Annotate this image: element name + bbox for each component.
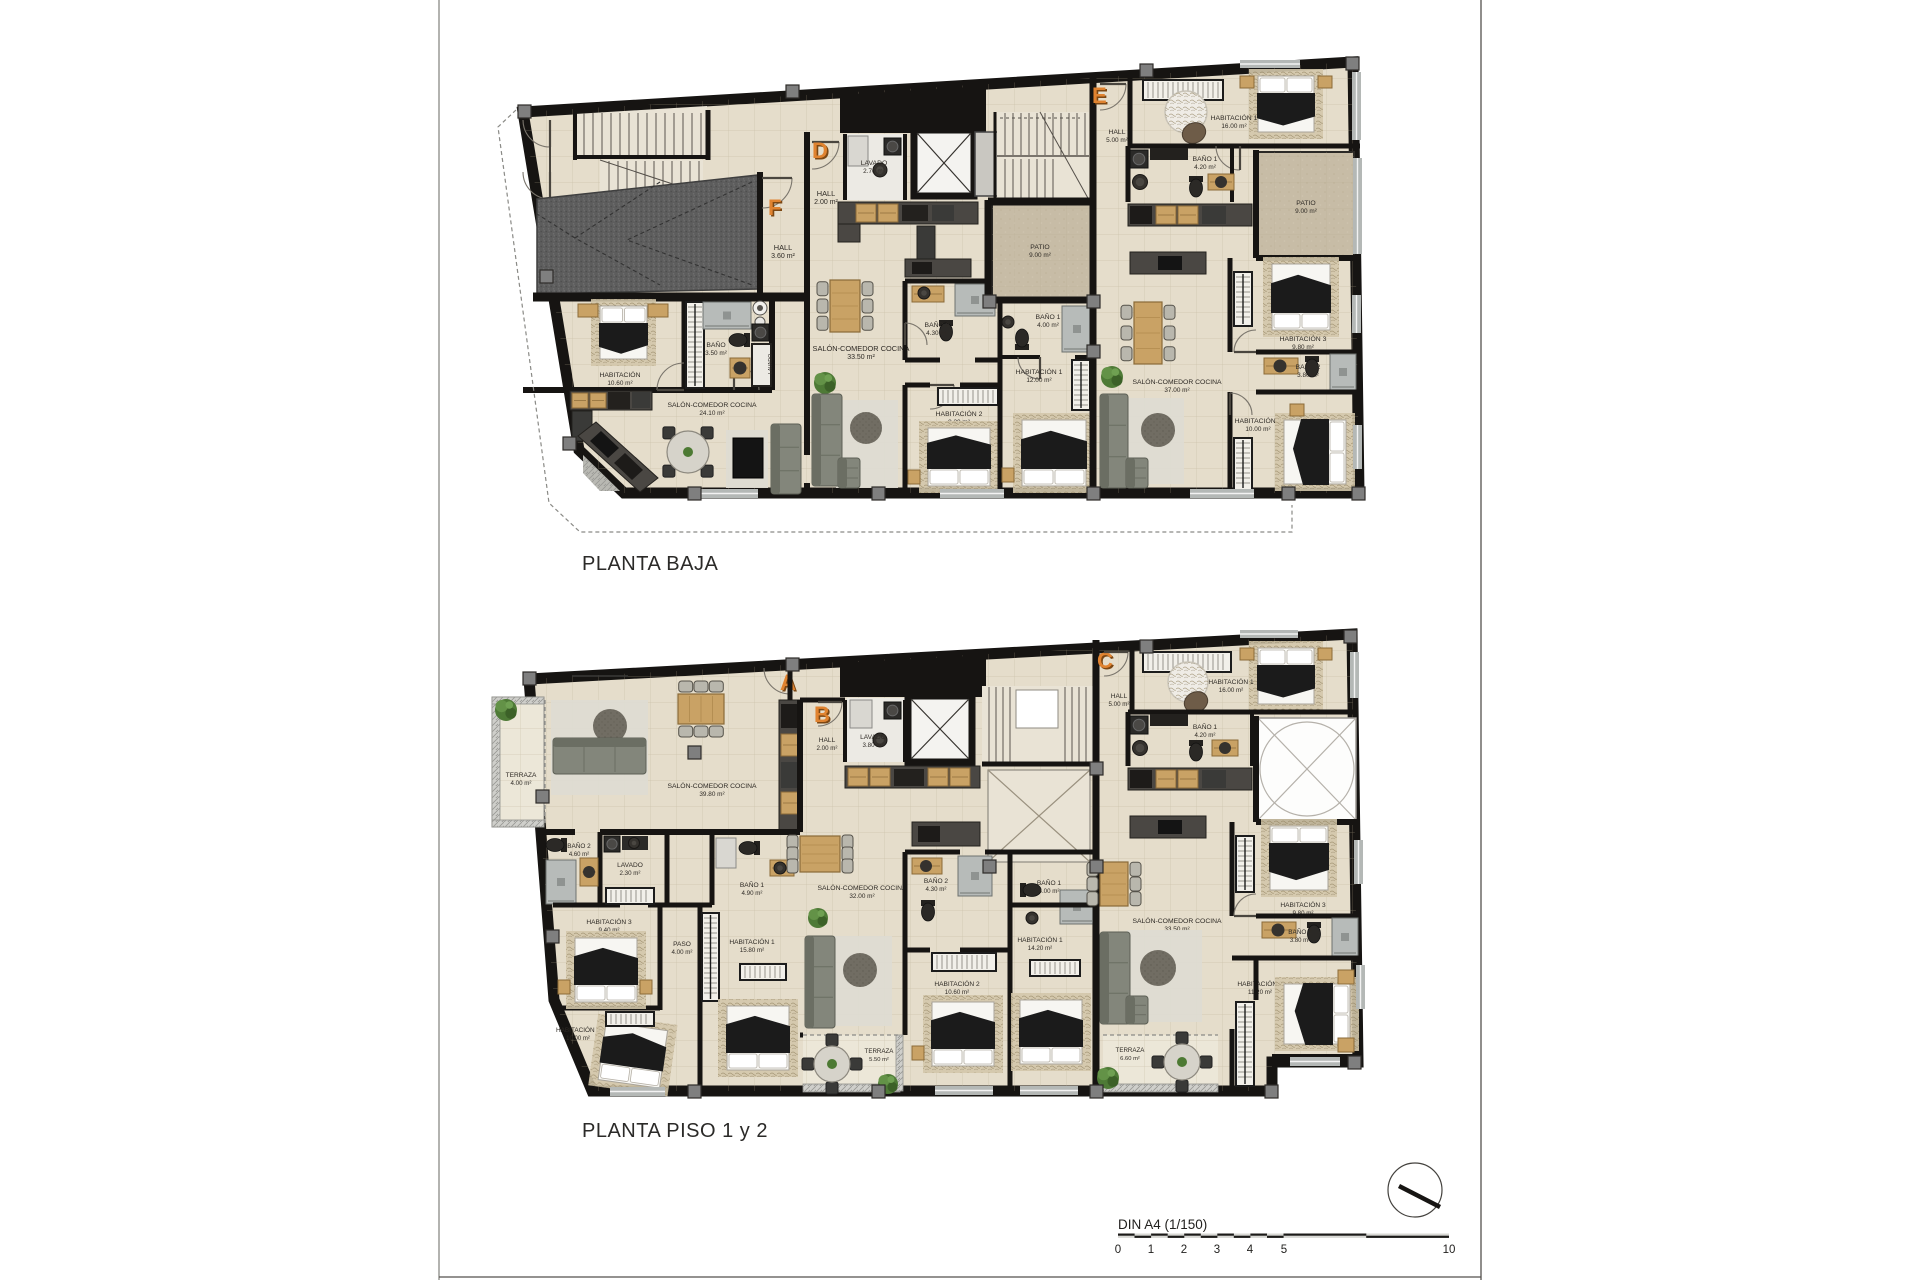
svg-text:SALÓN-COMEDOR COCINA: SALÓN-COMEDOR COCINA bbox=[817, 883, 907, 892]
svg-text:3.80 m²: 3.80 m² bbox=[1297, 372, 1319, 379]
svg-text:HABITACIÓN 2: HABITACIÓN 2 bbox=[1235, 416, 1282, 425]
svg-text:16.00 m²: 16.00 m² bbox=[1219, 687, 1243, 694]
svg-text:4.00 m²: 4.00 m² bbox=[672, 949, 693, 956]
svg-text:HALL: HALL bbox=[819, 737, 836, 744]
svg-text:5.00 m²: 5.00 m² bbox=[1109, 701, 1130, 708]
svg-text:BAÑO 1: BAÑO 1 bbox=[1193, 722, 1218, 731]
svg-text:4.90 m²: 4.90 m² bbox=[742, 890, 763, 897]
svg-text:4.00 m²: 4.00 m² bbox=[511, 780, 532, 787]
svg-text:33.50 m²: 33.50 m² bbox=[847, 354, 875, 361]
svg-text:HABITACIÓN 1: HABITACIÓN 1 bbox=[1211, 113, 1258, 122]
svg-text:9.00 m²: 9.00 m² bbox=[1029, 252, 1051, 259]
svg-text:HALL: HALL bbox=[1108, 129, 1125, 136]
svg-text:PLANTA BAJA: PLANTA BAJA bbox=[582, 553, 718, 575]
svg-text:BAÑO 2: BAÑO 2 bbox=[1288, 927, 1312, 936]
svg-text:HABITACIÓN 2: HABITACIÓN 2 bbox=[556, 1025, 600, 1034]
svg-text:BAÑO: BAÑO bbox=[706, 340, 725, 349]
svg-text:2: 2 bbox=[1181, 1244, 1187, 1256]
svg-text:SALÓN-COMEDOR COCINA: SALÓN-COMEDOR COCINA bbox=[1132, 377, 1222, 386]
svg-text:11.20 m²: 11.20 m² bbox=[1248, 989, 1272, 996]
svg-text:HABITACIÓN 3: HABITACIÓN 3 bbox=[586, 917, 632, 926]
svg-text:5.00 m²: 5.00 m² bbox=[1106, 137, 1128, 144]
svg-text:TERRAZA: TERRAZA bbox=[1116, 1047, 1146, 1054]
svg-text:BAÑO 1: BAÑO 1 bbox=[740, 880, 765, 889]
svg-text:37.00 m²: 37.00 m² bbox=[1164, 387, 1189, 394]
svg-text:32.00 m²: 32.00 m² bbox=[849, 893, 874, 900]
svg-text:HABITACIÓN 3: HABITACIÓN 3 bbox=[1280, 334, 1327, 343]
svg-text:BAÑO 1: BAÑO 1 bbox=[1037, 878, 1062, 887]
svg-text:2.00 m²: 2.00 m² bbox=[817, 745, 838, 752]
svg-text:12.00 m²: 12.00 m² bbox=[1026, 377, 1051, 384]
svg-text:LAVADO: LAVADO bbox=[860, 734, 886, 741]
svg-text:HABITACIÓN 1: HABITACIÓN 1 bbox=[1017, 935, 1063, 944]
svg-text:5.50 m²: 5.50 m² bbox=[869, 1057, 889, 1063]
svg-text:B: B bbox=[814, 702, 830, 727]
svg-text:BAÑO 2: BAÑO 2 bbox=[567, 841, 591, 850]
svg-text:SALÓN-COMEDOR COCINA: SALÓN-COMEDOR COCINA bbox=[1132, 916, 1222, 925]
svg-text:HABITACIÓN 2: HABITACIÓN 2 bbox=[934, 979, 980, 988]
svg-text:24.10 m²: 24.10 m² bbox=[699, 410, 724, 417]
svg-text:HABITACIÓN 1: HABITACIÓN 1 bbox=[729, 937, 775, 946]
svg-text:BAÑO 2: BAÑO 2 bbox=[1296, 362, 1321, 371]
svg-text:HABITACIÓN 1: HABITACIÓN 1 bbox=[1016, 367, 1063, 376]
svg-text:10.60 m²: 10.60 m² bbox=[945, 989, 969, 996]
svg-text:HALL: HALL bbox=[817, 189, 836, 198]
svg-text:BAÑO 1: BAÑO 1 bbox=[1036, 312, 1061, 321]
svg-text:TERRAZA: TERRAZA bbox=[506, 772, 537, 779]
svg-text:HABITACIÓN 1: HABITACIÓN 1 bbox=[1208, 677, 1254, 686]
svg-text:BAÑO 2: BAÑO 2 bbox=[924, 876, 949, 885]
svg-text:4.30 m²: 4.30 m² bbox=[926, 886, 947, 893]
svg-text:F: F bbox=[768, 195, 781, 220]
svg-text:TERRAZA: TERRAZA bbox=[865, 1048, 895, 1055]
svg-text:4.20 m²: 4.20 m² bbox=[1195, 732, 1216, 739]
svg-text:PATIO: PATIO bbox=[1296, 200, 1315, 207]
svg-text:4: 4 bbox=[1247, 1244, 1254, 1256]
svg-text:SALÓN-COMEDOR COCINA: SALÓN-COMEDOR COCINA bbox=[813, 344, 910, 353]
svg-text:6.60 m²: 6.60 m² bbox=[1120, 1056, 1140, 1062]
svg-text:4.30 m²: 4.30 m² bbox=[926, 330, 948, 337]
svg-text:PATIO: PATIO bbox=[1030, 244, 1049, 251]
svg-text:9.00 m²: 9.00 m² bbox=[1295, 208, 1317, 215]
svg-text:HALL: HALL bbox=[1111, 693, 1128, 700]
svg-text:D: D bbox=[812, 138, 828, 163]
svg-text:LAVADO: LAVADO bbox=[768, 354, 774, 374]
svg-text:4.20 m²: 4.20 m² bbox=[1194, 164, 1216, 171]
svg-text:4.00 m²: 4.00 m² bbox=[1039, 888, 1060, 895]
svg-text:SALÓN-COMEDOR COCINA: SALÓN-COMEDOR COCINA bbox=[667, 400, 757, 409]
svg-text:10: 10 bbox=[1443, 1244, 1456, 1256]
svg-text:PASO: PASO bbox=[673, 941, 691, 948]
svg-text:10.00 m²: 10.00 m² bbox=[1245, 426, 1270, 433]
svg-text:3.80 m²: 3.80 m² bbox=[1290, 938, 1310, 944]
svg-text:1: 1 bbox=[1148, 1244, 1154, 1256]
svg-text:SALÓN-COMEDOR COCINA: SALÓN-COMEDOR COCINA bbox=[667, 781, 757, 790]
svg-text:16.00 m²: 16.00 m² bbox=[1221, 123, 1246, 130]
svg-text:4.00 m²: 4.00 m² bbox=[1037, 322, 1059, 329]
svg-text:HABITACIÓN 3: HABITACIÓN 3 bbox=[1280, 900, 1326, 909]
svg-text:3.50 m²: 3.50 m² bbox=[705, 350, 727, 357]
svg-text:2.70 m²: 2.70 m² bbox=[863, 168, 885, 175]
svg-text:3.80 m²: 3.80 m² bbox=[863, 742, 884, 749]
svg-text:PLANTA PISO 1 y 2: PLANTA PISO 1 y 2 bbox=[582, 1120, 768, 1142]
svg-text:0: 0 bbox=[1115, 1244, 1121, 1256]
svg-text:HABITACIÓN: HABITACIÓN bbox=[599, 370, 640, 379]
svg-text:3: 3 bbox=[1214, 1244, 1220, 1256]
svg-text:14.20 m²: 14.20 m² bbox=[1028, 945, 1052, 952]
svg-text:BAÑO 2: BAÑO 2 bbox=[925, 320, 950, 329]
svg-text:2.30 m²: 2.30 m² bbox=[620, 870, 641, 877]
svg-text:10.00 m²: 10.00 m² bbox=[566, 1036, 590, 1042]
svg-text:2.00 m²: 2.00 m² bbox=[814, 199, 838, 206]
svg-text:15.80 m²: 15.80 m² bbox=[740, 947, 764, 954]
svg-text:HABITACIÓN 2: HABITACIÓN 2 bbox=[936, 409, 983, 418]
svg-text:3.60 m²: 3.60 m² bbox=[771, 253, 795, 260]
svg-text:4.60 m²: 4.60 m² bbox=[569, 852, 589, 858]
svg-text:5: 5 bbox=[1281, 1244, 1287, 1256]
svg-text:HALL: HALL bbox=[774, 243, 793, 252]
svg-text:DIN A4 (1/150): DIN A4 (1/150) bbox=[1118, 1217, 1207, 1232]
svg-text:E: E bbox=[1092, 83, 1107, 108]
svg-text:LAVADO: LAVADO bbox=[861, 160, 888, 167]
svg-text:BAÑO 1: BAÑO 1 bbox=[1193, 154, 1218, 163]
svg-text:39.80 m²: 39.80 m² bbox=[699, 791, 724, 798]
svg-text:LAVADO: LAVADO bbox=[617, 862, 643, 869]
svg-text:10.60 m²: 10.60 m² bbox=[607, 380, 632, 387]
